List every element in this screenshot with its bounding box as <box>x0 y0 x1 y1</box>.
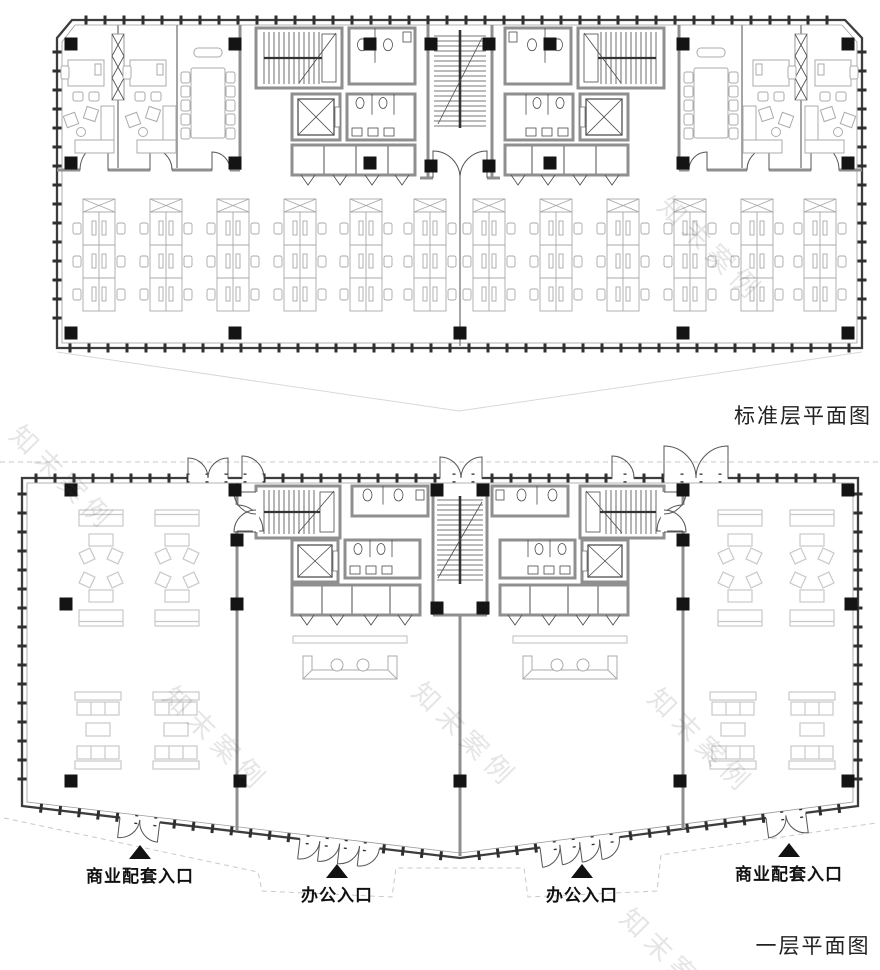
meeting-room-furniture <box>684 48 738 139</box>
toilet-room <box>349 28 415 84</box>
entrance-marker-icon <box>129 845 151 859</box>
entrance-commercial-left: 商业配套入口 <box>57 845 223 887</box>
toilet-room <box>492 486 568 516</box>
elevator-icon <box>292 94 340 140</box>
entrance-marker-icon <box>778 843 800 857</box>
first-floor-plan-title: 一层平面图 <box>751 930 875 960</box>
office-block-left <box>57 25 240 173</box>
desk-strip <box>731 199 783 311</box>
entrance-marker-icon <box>326 864 348 878</box>
entrance-door-bank <box>540 834 622 867</box>
entrance-office-right: 办公入口 <box>507 864 657 906</box>
desk-strip <box>664 199 716 311</box>
floor-plan-drawing <box>0 0 880 970</box>
desk-strip <box>140 199 192 311</box>
washroom <box>505 94 573 140</box>
sofa-cluster <box>79 510 123 626</box>
standard-floor-plan-title: 标准层平面图 <box>728 400 878 430</box>
shaft-room <box>292 145 415 185</box>
desk-strip <box>530 199 582 311</box>
desk-strip <box>73 199 125 311</box>
floor-plan-sheet: 标准层平面图 一层平面图 商业配套入口 办公入口 办公入口 商业配套入口 知末案… <box>0 0 880 970</box>
washroom <box>345 540 420 578</box>
shaft-room <box>292 585 420 625</box>
core-left <box>256 28 415 185</box>
booth-seating <box>153 692 199 769</box>
stair-icon <box>584 32 656 84</box>
desk-strip <box>794 199 846 311</box>
shaft-room <box>505 145 628 185</box>
elevator-icon <box>292 540 338 582</box>
sofa-cluster <box>790 510 834 626</box>
entrance-marker-icon <box>571 864 593 878</box>
desk-strip <box>207 199 259 311</box>
desk-strip <box>404 199 456 311</box>
booth-seating <box>75 692 121 769</box>
desk-strip <box>274 199 326 311</box>
meeting-room-furniture <box>181 48 235 139</box>
office-block-right <box>679 25 862 173</box>
entrance-label: 办公入口 <box>546 881 618 906</box>
central-stair <box>433 486 487 615</box>
washroom <box>347 94 415 140</box>
private-office-furniture <box>743 60 796 153</box>
washroom <box>500 540 575 578</box>
sofa-cluster <box>155 510 199 626</box>
private-office-furniture <box>805 60 858 153</box>
reception-counter <box>513 636 627 679</box>
private-office-furniture <box>61 60 114 153</box>
braced-partition <box>795 34 807 100</box>
desk-strip <box>463 199 515 311</box>
core-right <box>505 28 664 185</box>
stair-icon <box>264 490 334 534</box>
booth-seating <box>789 692 835 769</box>
toilet-room <box>352 486 428 516</box>
stair-icon <box>264 32 336 84</box>
sofa-cluster <box>718 510 762 626</box>
desk-strip <box>340 199 392 311</box>
entrance-door <box>118 814 160 842</box>
desk-strip <box>597 199 649 311</box>
core-left <box>234 486 428 625</box>
first-floor-plan <box>0 446 880 897</box>
stair-icon <box>586 490 656 534</box>
standard-floor-plan <box>53 16 867 412</box>
private-office-furniture <box>123 60 176 153</box>
reception-counter <box>293 636 407 679</box>
booth-seating <box>710 692 756 769</box>
shaft-room <box>500 585 628 625</box>
toilet-room <box>505 28 571 84</box>
entrance-label: 商业配套入口 <box>735 860 843 885</box>
entrance-office-left: 办公入口 <box>262 864 412 906</box>
entrance-commercial-right: 商业配套入口 <box>706 843 872 885</box>
elevator-icon <box>580 94 628 140</box>
braced-partition <box>112 34 124 100</box>
entrance-label: 商业配套入口 <box>86 862 194 887</box>
elevator-icon <box>582 540 628 582</box>
core-right <box>492 486 686 625</box>
entrance-label: 办公入口 <box>301 881 373 906</box>
